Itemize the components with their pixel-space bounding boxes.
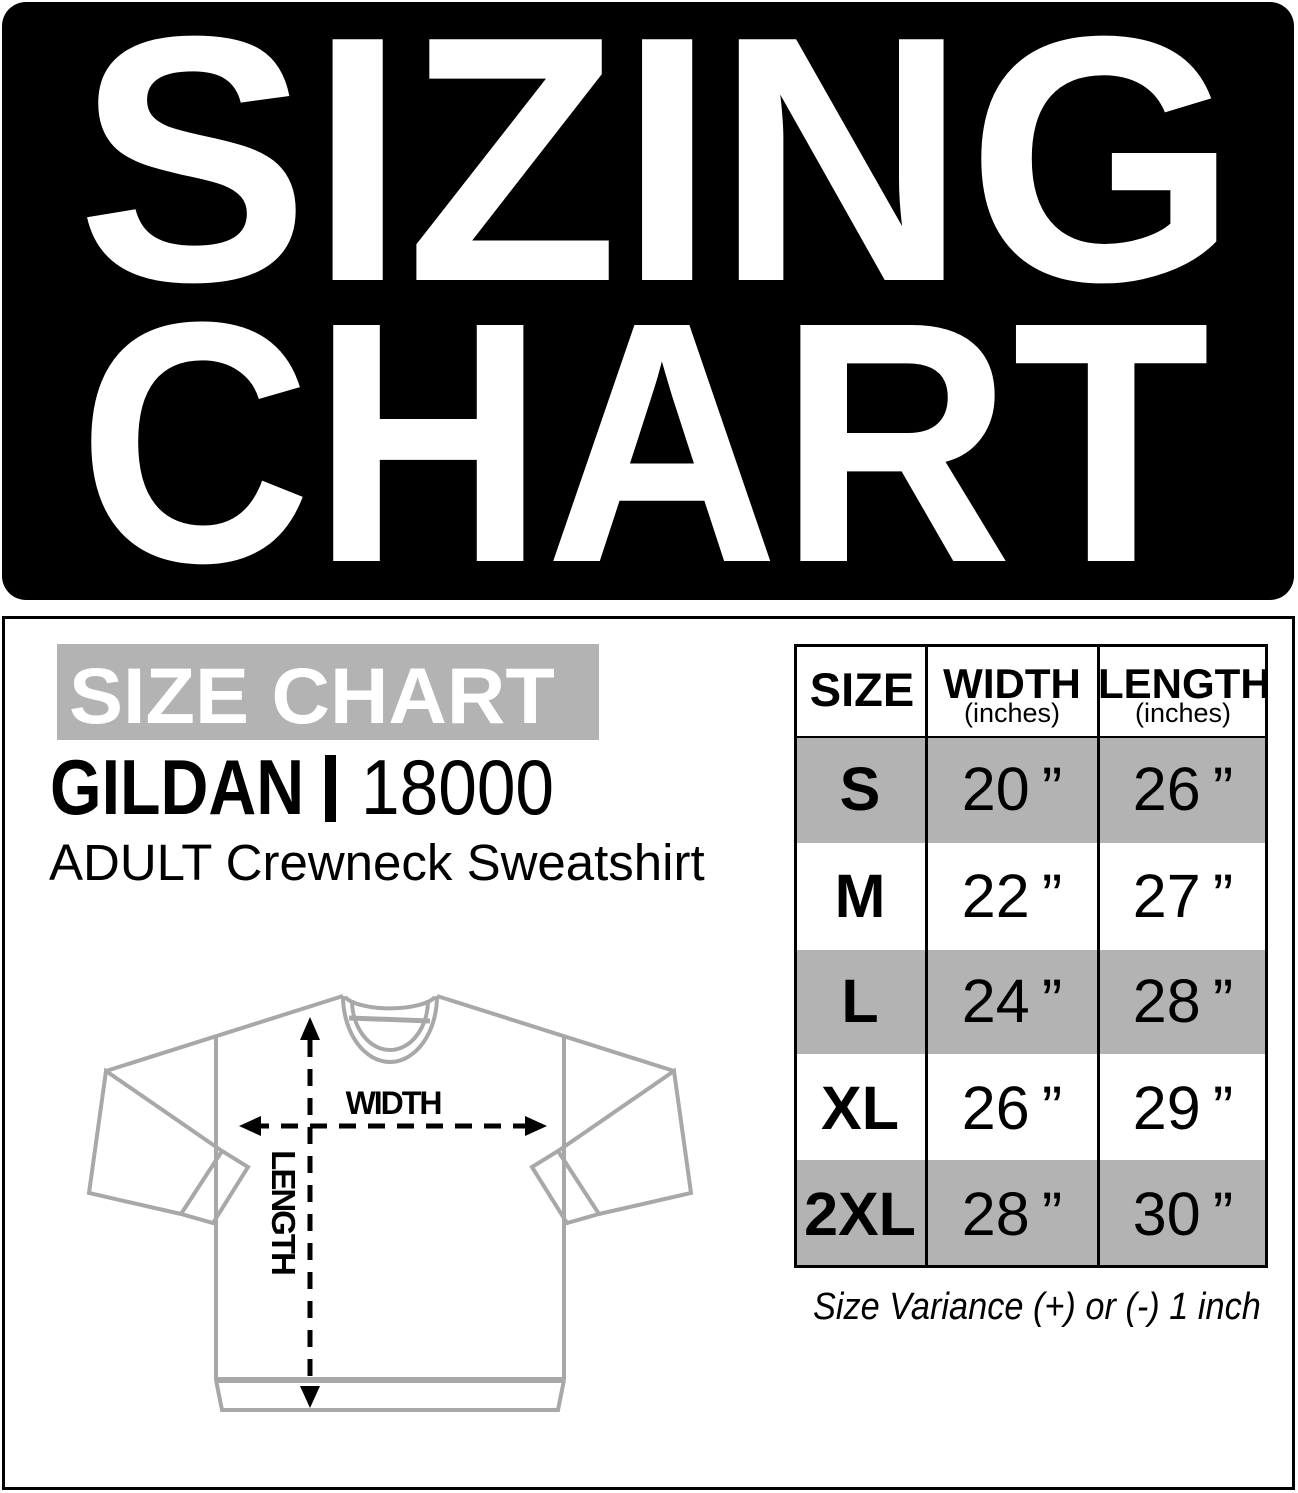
- svg-text:WIDTH: WIDTH: [346, 1085, 441, 1121]
- svg-text:LENGTH: LENGTH: [265, 1150, 302, 1274]
